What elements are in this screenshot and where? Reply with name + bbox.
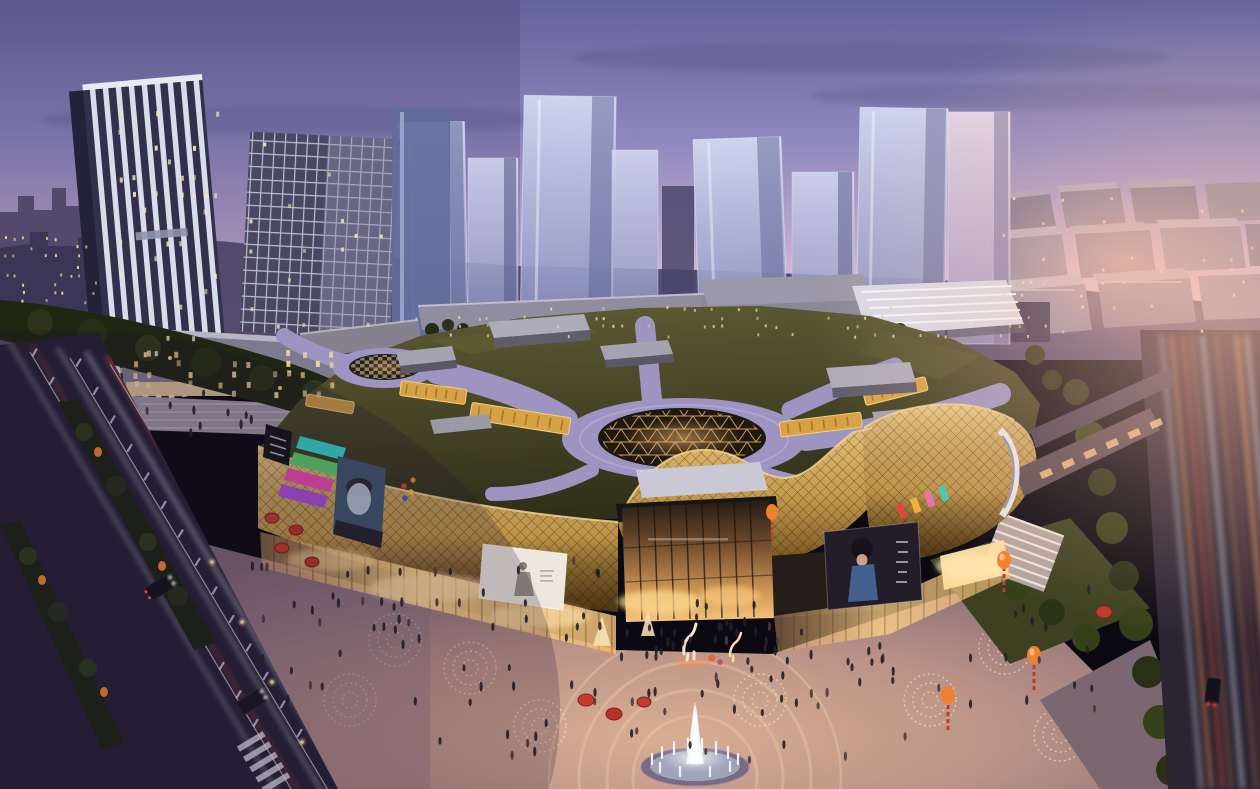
car-right-avenue <box>1204 677 1221 706</box>
model-billboard <box>824 522 922 610</box>
grid-office-tower <box>240 132 400 340</box>
rendering-scene <box>0 0 1260 789</box>
atrium-signage <box>648 538 728 541</box>
entrance-atrium <box>616 462 778 622</box>
mall-dusk-rendering <box>0 0 1260 789</box>
